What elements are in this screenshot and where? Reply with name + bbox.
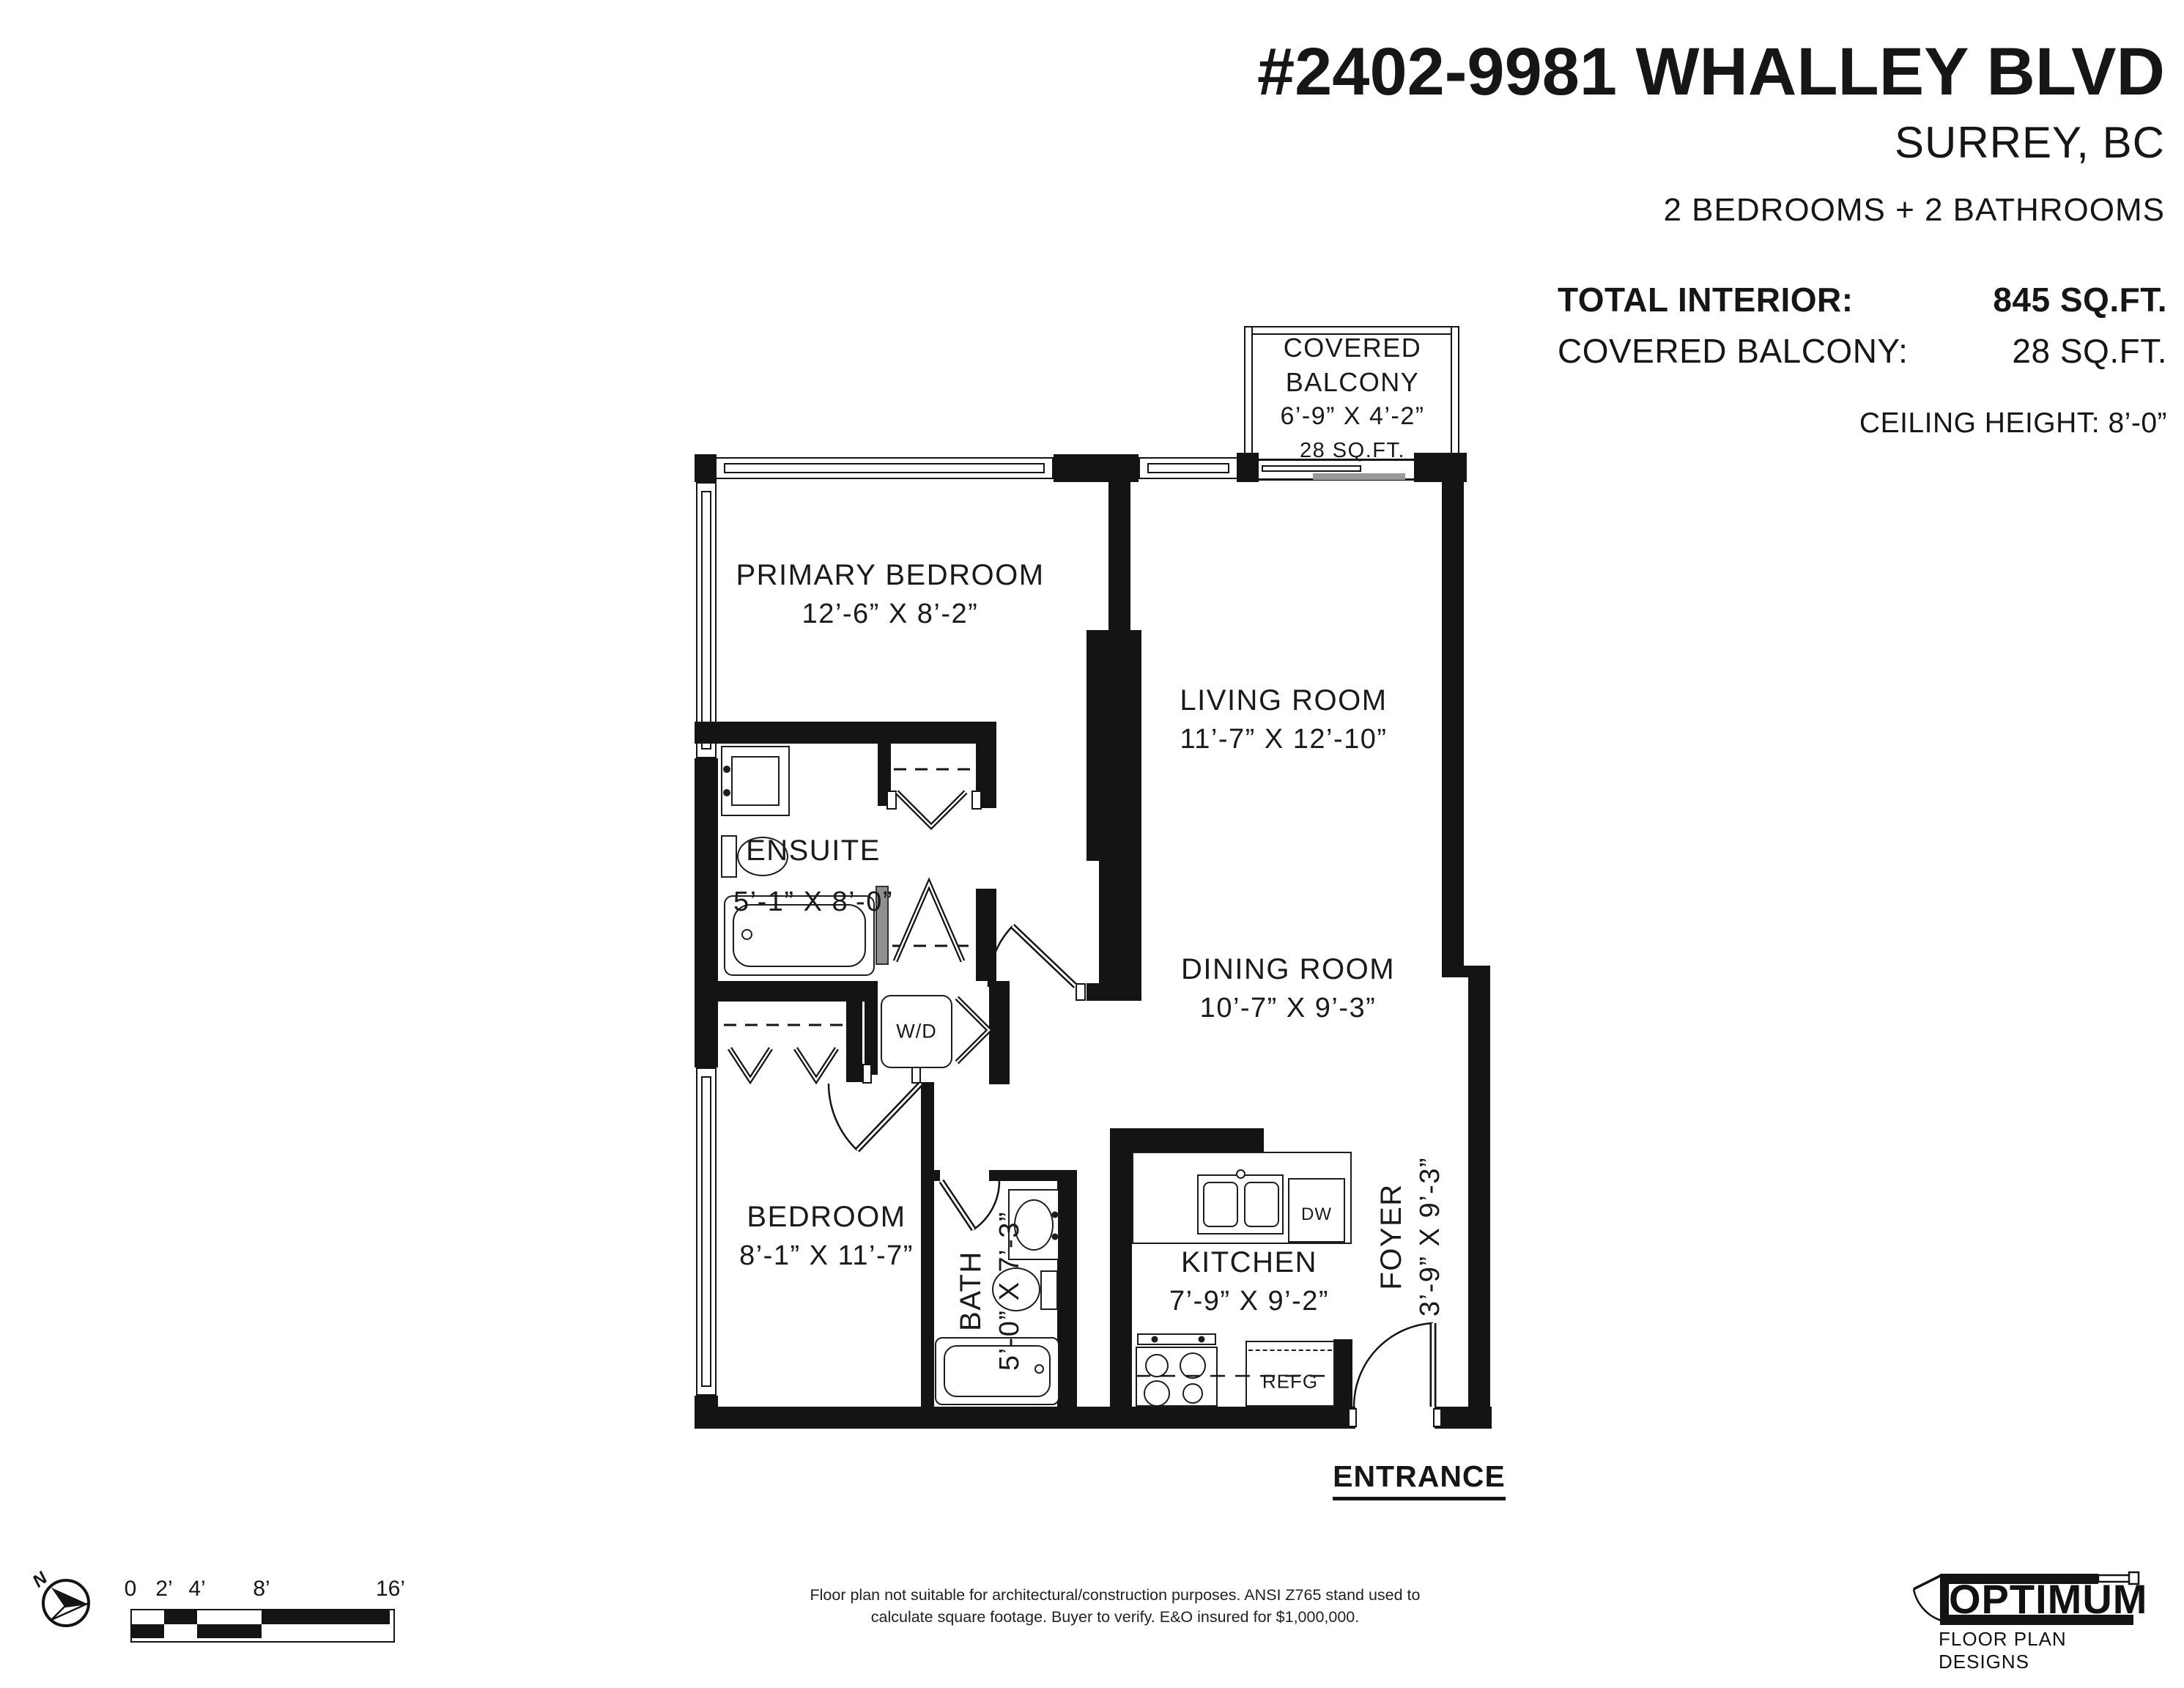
- bedroom-label: BEDROOM 8’-1” X 11’-7”: [739, 1198, 914, 1276]
- bath-label: BATH 5’-0” X 7’-3”: [952, 1211, 1029, 1371]
- entrance-door-swing-icon: [1354, 1323, 1433, 1407]
- entrance-label: ENTRANCE: [1333, 1459, 1506, 1500]
- dishwasher-label: DW: [1301, 1204, 1332, 1225]
- dining-room-label: DINING ROOM 10’-7” X 9’-3”: [1181, 950, 1395, 1028]
- bifold-door-icon: [957, 998, 989, 1062]
- ensuite-label: ENSUITE 5’-1” X 8’-0”: [733, 825, 893, 928]
- door-swing-icon: [988, 926, 1076, 987]
- washer-dryer-label: W/D: [896, 1021, 936, 1043]
- living-room-label: LIVING ROOM 11’-7” X 12’-10”: [1180, 681, 1387, 759]
- bifold-door-icon: [796, 1048, 837, 1080]
- foyer-label: FOYER 3’-9” X 9’-3”: [1372, 1157, 1450, 1317]
- refrigerator-label: REFG: [1262, 1371, 1318, 1393]
- door-swing-icon: [829, 1084, 921, 1150]
- primary-bedroom-label: PRIMARY BEDROOM 12’-6” X 8’-2”: [736, 556, 1044, 634]
- kitchen-label: KITCHEN 7’-9” X 9’-2”: [1169, 1243, 1329, 1321]
- bifold-door-icon: [730, 1048, 771, 1080]
- compass-icon: N: [29, 1568, 89, 1626]
- balcony-label: COVERED BALCONY 6’-9” X 4’-2” 28 SQ.FT.: [1280, 330, 1424, 468]
- floor-plan-page: { "header": { "title": "#2402-9981 WHALL…: [0, 0, 2184, 1688]
- bifold-door-icon: [895, 884, 963, 961]
- logo-frame-icon: [1914, 1572, 2139, 1625]
- bifold-door-icon: [897, 792, 966, 826]
- plan-symbols: N: [0, 0, 2184, 1688]
